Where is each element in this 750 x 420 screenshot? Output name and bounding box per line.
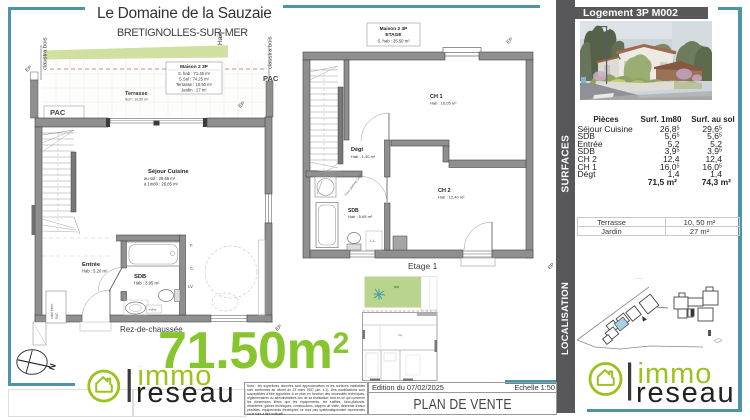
svg-text:CH 2: CH 2 [438,188,451,194]
svg-text:Terrasse: Terrasse [125,91,148,97]
svg-text:LV.: LV. [188,284,194,289]
svg-text:reseau: reseau [636,377,735,405]
svg-text:Hab : 5,65 m²: Hab : 5,65 m² [348,214,373,219]
svg-text:N: N [46,362,57,371]
svg-text:Hab : 12,40 m²: Hab : 12,40 m² [438,195,465,200]
svg-text:Terrasse : 10.50 m²: Terrasse : 10.50 m² [176,82,213,87]
svg-text:Entrée: Entrée [82,262,101,268]
svg-text:PAC: PAC [263,74,279,83]
svg-text:Séjour Cuisine: Séjour Cuisine [148,169,189,175]
svg-text:S. hab : 71.45 m²: S. hab : 71.45 m² [178,71,211,76]
svg-text:EP: EP [547,262,556,271]
svg-text:Etage 1: Etage 1 [408,261,438,271]
svg-text:F.: F. [190,243,193,248]
svg-text:Hab : 5.20 m²: Hab : 5.20 m² [82,269,108,274]
svg-text:C.: C. [190,266,194,271]
svg-text:au sol : 29,65 m²: au sol : 29,65 m² [144,176,176,181]
svg-text:SDB: SDB [134,274,146,280]
svg-text:L.L.: L.L. [370,239,376,243]
svg-text:PAC: PAC [55,312,59,319]
svg-text:Jardin : 27 m²: Jardin : 27 m² [181,88,207,93]
svg-text:claustra bois: claustra bois [268,36,274,69]
svg-text:ETAGE: ETAGE [385,32,402,38]
svg-text:à 1m80 : 26,85 m²: à 1m80 : 26,85 m² [144,182,179,187]
svg-text:Hab : 3.95 m²: Hab : 3.95 m² [134,281,160,286]
svg-text:CH 1: CH 1 [430,94,443,100]
svg-text:S.Sol : 74.25 m²: S.Sol : 74.25 m² [179,77,210,82]
svg-text:Séj.: Séj. [398,333,403,337]
svg-text:Surf : 10,50 m²: Surf : 10,50 m² [125,98,149,102]
svg-text:PAC: PAC [50,108,66,117]
svg-text:Maison 2 3P: Maison 2 3P [180,64,209,70]
svg-text:Hab : 1,40 m²: Hab : 1,40 m² [351,154,376,159]
svg-text:Dégt: Dégt [351,147,363,153]
svg-text:soffite: soffite [149,308,157,312]
svg-text:claustra bois: claustra bois [43,37,49,70]
svg-text:S. hab : 35.50 m²: S. hab : 35.50 m² [377,39,410,44]
svg-text:unité extér.: unité extér. [50,303,54,319]
svg-text:EP: EP [505,36,514,45]
svg-text:reseau: reseau [136,377,235,409]
svg-text:Hab : 16,05 m²: Hab : 16,05 m² [430,101,457,106]
svg-text:Maison 2 3P: Maison 2 3P [380,26,409,32]
